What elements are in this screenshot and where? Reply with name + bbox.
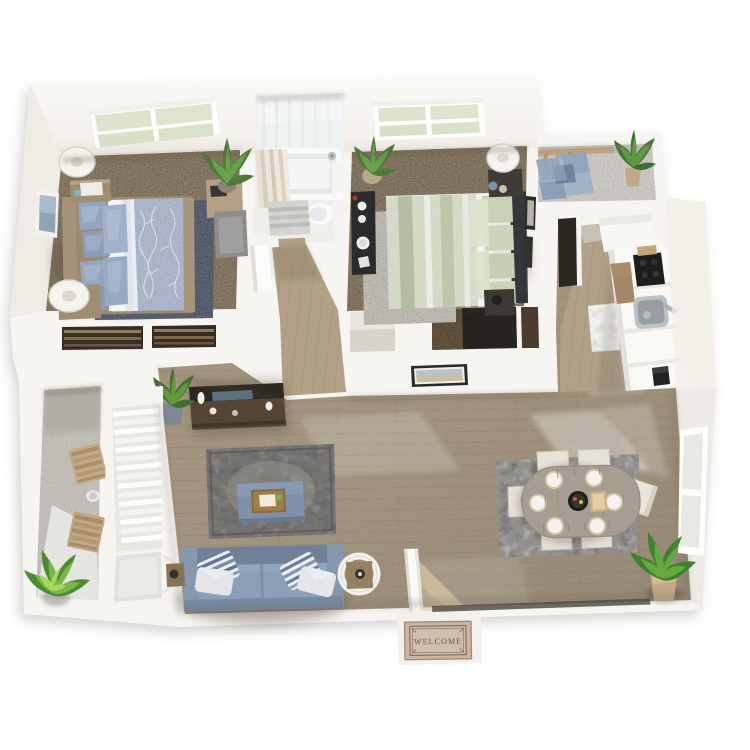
- svg-text:WELCOME: WELCOME: [414, 637, 463, 647]
